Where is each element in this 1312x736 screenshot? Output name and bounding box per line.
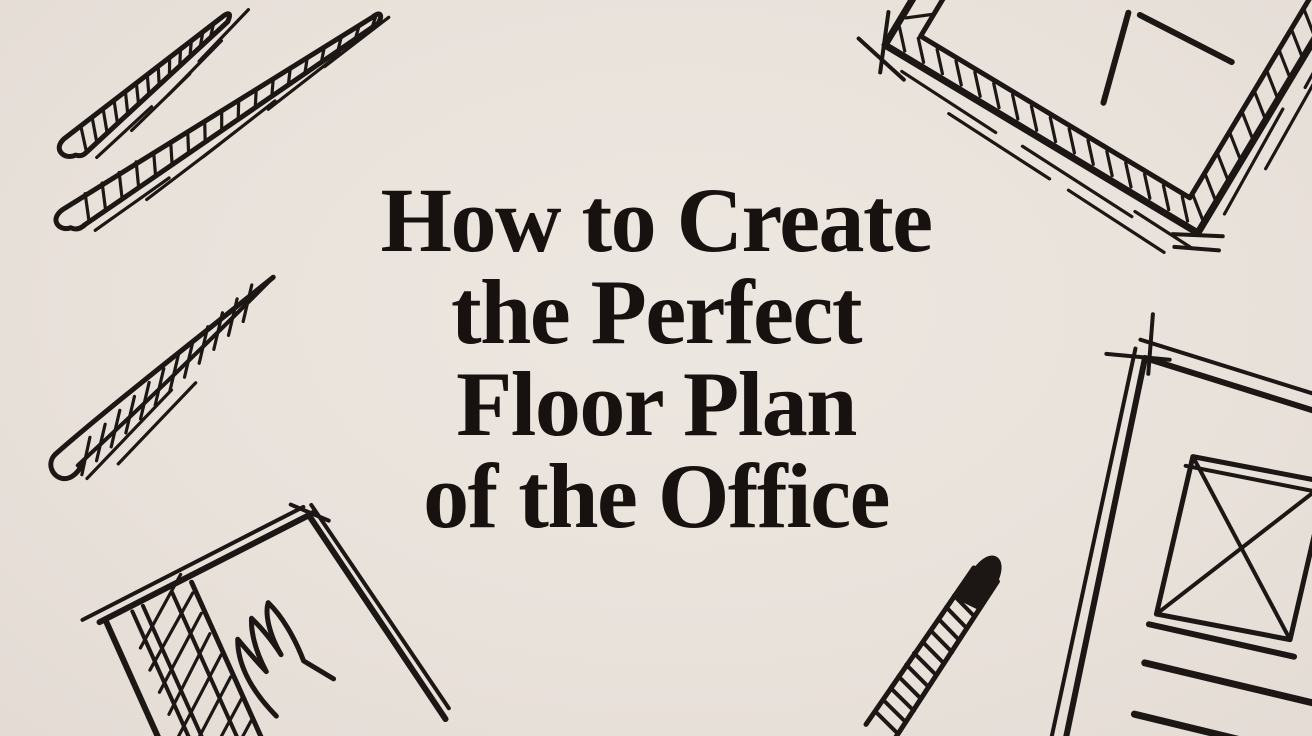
hero-title-line-2: the Perfect [0, 266, 1312, 358]
pencil-bottom-center-icon [866, 549, 1011, 736]
hero-title-line-3: Floor Plan [0, 358, 1312, 450]
hero-title: How to Create the Perfect Floor Plan of … [0, 174, 1312, 542]
hero-title-line-4: of the Office [0, 450, 1312, 542]
hero-title-line-1: How to Create [0, 174, 1312, 266]
hero-banner: How to Create the Perfect Floor Plan of … [0, 0, 1312, 736]
